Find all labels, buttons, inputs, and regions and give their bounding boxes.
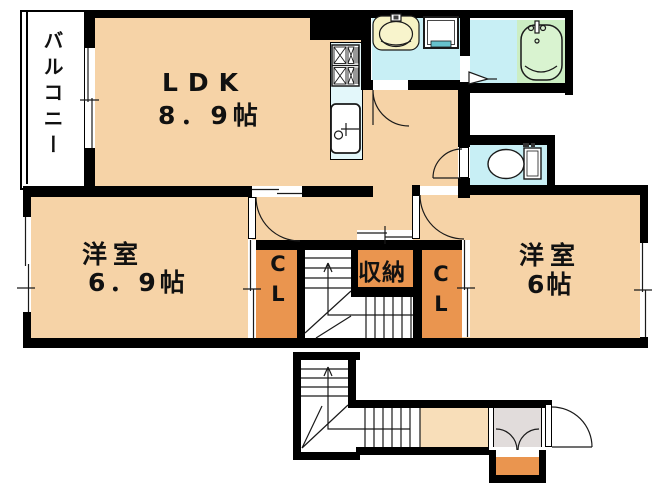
wall xyxy=(23,338,648,348)
wall xyxy=(412,185,420,195)
room2-door-panel xyxy=(412,195,420,239)
window-west-room-2 xyxy=(640,243,648,337)
wall xyxy=(356,447,489,455)
wall xyxy=(361,10,371,88)
entry-corridor xyxy=(420,408,488,447)
ldk-label: LDK xyxy=(162,68,248,97)
room2-size-label: 6帖 xyxy=(527,265,573,301)
bathtub-area xyxy=(517,20,565,83)
hallway-gap xyxy=(373,186,412,197)
wall xyxy=(458,83,573,93)
storage-label: 収納 xyxy=(358,253,406,287)
wall xyxy=(297,250,305,338)
entrance-door-panel xyxy=(545,404,552,447)
toilet-door-panel xyxy=(459,147,469,178)
wall xyxy=(256,240,470,250)
wall xyxy=(489,475,546,483)
wall xyxy=(23,197,31,217)
closet1-label: CL xyxy=(266,252,290,316)
balcony-label: バルコニー xyxy=(38,30,67,182)
sliding-door-closet-1 xyxy=(248,240,256,338)
wall xyxy=(640,195,648,243)
wall xyxy=(302,186,373,197)
wall xyxy=(462,135,555,145)
stairs-upper-bg xyxy=(305,250,351,338)
room1-size-label: 6．9帖 xyxy=(88,263,189,299)
room1-door-panel xyxy=(248,197,256,239)
hallway-upper xyxy=(361,88,458,186)
wall xyxy=(348,400,552,408)
storage-door xyxy=(357,230,413,240)
wall-duct xyxy=(310,14,362,40)
washroom-door-opening xyxy=(373,80,408,90)
wall xyxy=(293,452,360,460)
wall xyxy=(23,312,31,338)
wall xyxy=(462,185,648,195)
floor-plan: バルコニー LDK 8．9帖 洋室 6．9帖 洋室 6帖 CL CL 収納 xyxy=(0,0,654,491)
ext-stair-run-bg xyxy=(356,408,420,447)
entrance-door-arc xyxy=(552,407,592,447)
toilet-floor xyxy=(470,145,547,185)
wall xyxy=(361,80,373,90)
stairs-lower-bg xyxy=(358,297,413,338)
porch xyxy=(496,457,539,475)
ext-stair-column-bg xyxy=(301,360,348,452)
ldk-size-label: 8．9帖 xyxy=(158,96,263,132)
wall xyxy=(351,287,422,297)
ldk-door-opening xyxy=(252,186,302,197)
washroom-floor xyxy=(372,18,460,80)
wall xyxy=(408,80,460,90)
window-balcony xyxy=(85,48,95,148)
window-west-room-1 xyxy=(23,217,31,312)
bathroom-floor xyxy=(470,20,517,83)
porch-step xyxy=(496,447,539,457)
wall xyxy=(293,352,301,460)
closet2-label: CL xyxy=(429,262,453,326)
wall xyxy=(85,10,95,48)
sliding-door-closet-2 xyxy=(462,240,470,337)
genkan-entry xyxy=(494,408,541,447)
bathroom-folding-door xyxy=(460,55,470,83)
wall xyxy=(23,186,252,197)
wall xyxy=(460,10,470,55)
kitchen-counter xyxy=(330,42,363,160)
balcony-rail-line xyxy=(26,12,28,184)
